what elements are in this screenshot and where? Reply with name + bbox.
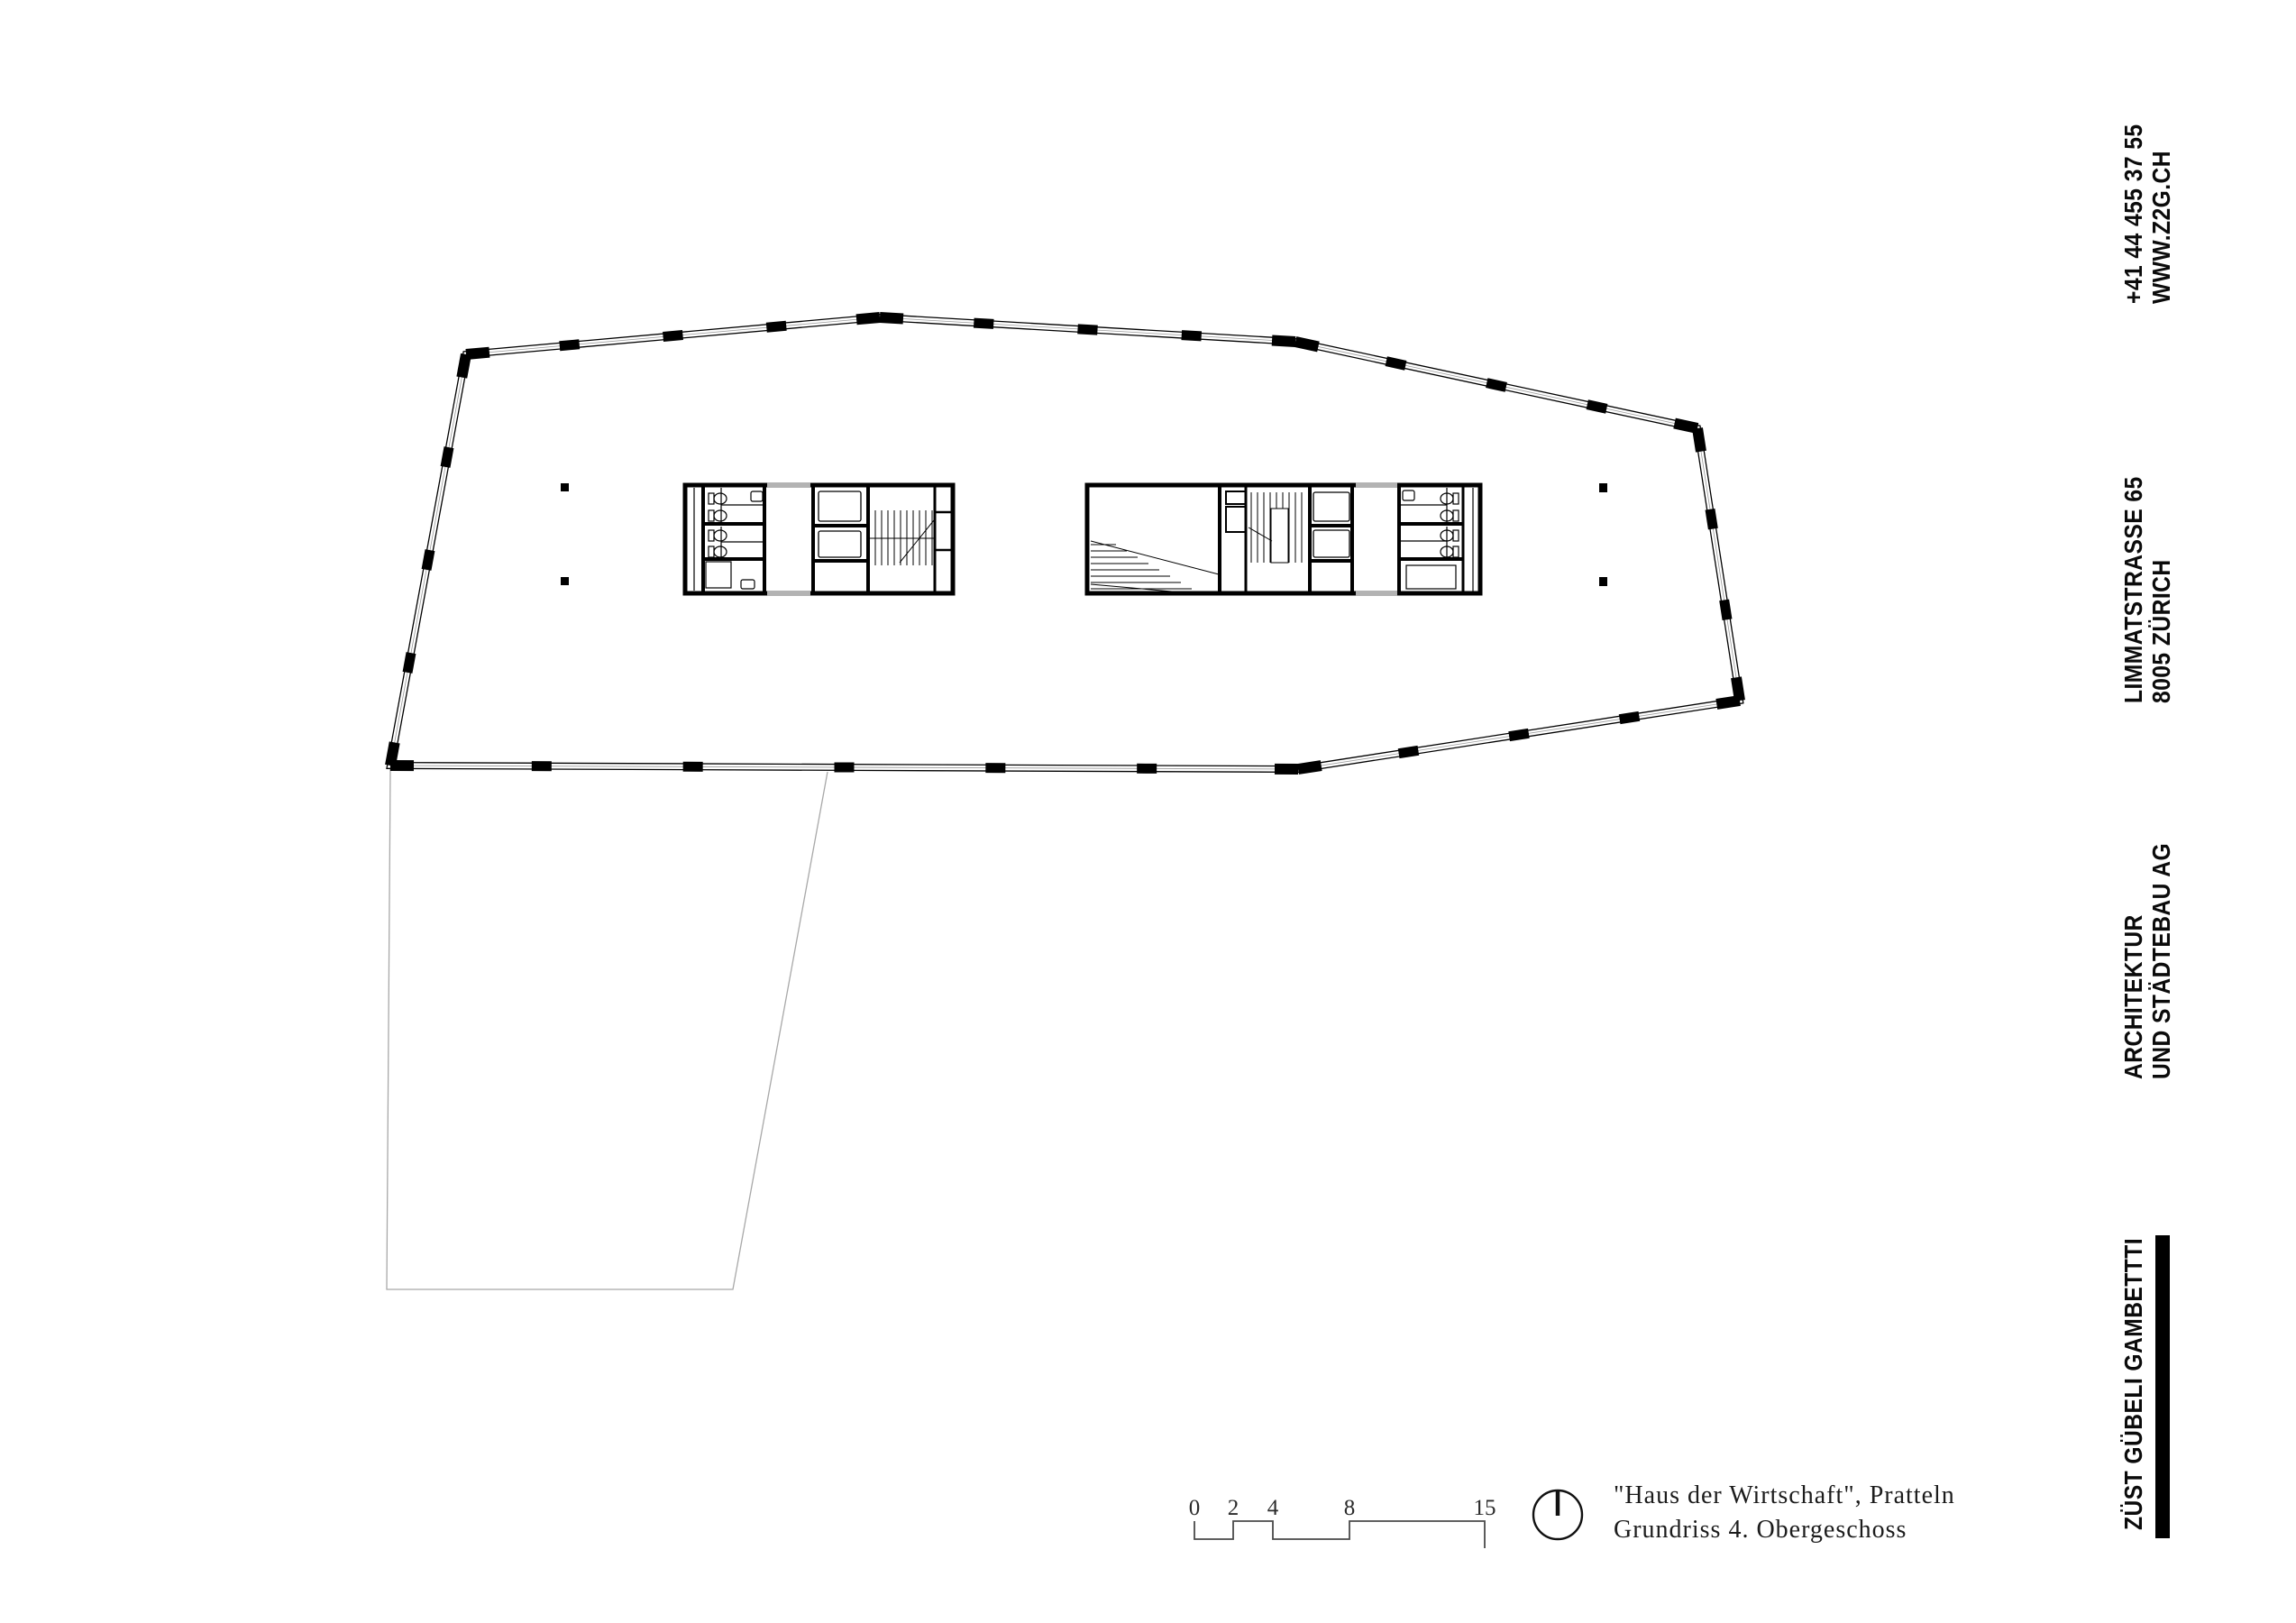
sidebar-contact: +41 44 455 37 55 WWW.Z2G.CH bbox=[2119, 124, 2175, 304]
right-core bbox=[1087, 485, 1480, 593]
building-facade bbox=[390, 317, 1740, 769]
column bbox=[1599, 483, 1607, 492]
left-core bbox=[685, 485, 953, 593]
columns bbox=[561, 483, 1607, 586]
column bbox=[561, 577, 569, 585]
sidebar-phone: +41 44 455 37 55 bbox=[2119, 124, 2147, 304]
stair bbox=[1249, 492, 1302, 563]
feature-stair bbox=[1091, 541, 1219, 591]
stair bbox=[870, 510, 934, 565]
sidebar-brand: ZÜST GÜBELI GAMBETTTI bbox=[2119, 1238, 2147, 1530]
elevator-car bbox=[1313, 492, 1349, 521]
scale-label: 2 bbox=[1228, 1496, 1239, 1521]
elevator-car bbox=[1313, 530, 1349, 557]
column bbox=[561, 483, 569, 491]
sidebar-firm-line1: ARCHITEKTUR bbox=[2119, 843, 2147, 1079]
column bbox=[1599, 577, 1607, 586]
scale-label: 15 bbox=[1474, 1496, 1496, 1521]
scale-label: 0 bbox=[1189, 1496, 1201, 1521]
scale-label: 4 bbox=[1267, 1496, 1279, 1521]
sidebar-brand-name: ZÜST GÜBELI GAMBETTTI bbox=[2119, 1238, 2147, 1530]
drawing-sheet: 0 2 4 8 15 "Haus der Wirtschaft", Pratte… bbox=[0, 0, 2296, 1623]
scale-label: 8 bbox=[1344, 1496, 1356, 1521]
sidebar-address: LIMMATSTRASSE 65 8005 ZÜRICH bbox=[2119, 476, 2175, 703]
scale-bar bbox=[1194, 1521, 1485, 1548]
sidebar-firm-line2: UND STÄDTEBAU AG bbox=[2147, 843, 2175, 1079]
sidebar-city: 8005 ZÜRICH bbox=[2147, 476, 2175, 703]
drawing-title: Grundriss 4. Obergeschoss bbox=[1614, 1513, 1955, 1547]
sidebar-firm: ARCHITEKTUR UND STÄDTEBAU AG bbox=[2119, 843, 2175, 1079]
brand-bar bbox=[2155, 1235, 2170, 1538]
elevator-car bbox=[819, 531, 861, 557]
floor-plan-drawing bbox=[0, 0, 2296, 1623]
elevator-car bbox=[819, 491, 861, 521]
sidebar-street: LIMMATSTRASSE 65 bbox=[2119, 476, 2147, 703]
sidebar-website: WWW.Z2G.CH bbox=[2147, 124, 2175, 304]
wc-fixtures bbox=[706, 491, 763, 589]
title-block: "Haus der Wirtschaft", Pratteln Grundris… bbox=[1614, 1479, 1955, 1547]
project-title: "Haus der Wirtschaft", Pratteln bbox=[1614, 1479, 1955, 1513]
site-boundary bbox=[387, 769, 828, 1289]
north-arrow-icon bbox=[1533, 1490, 1582, 1539]
